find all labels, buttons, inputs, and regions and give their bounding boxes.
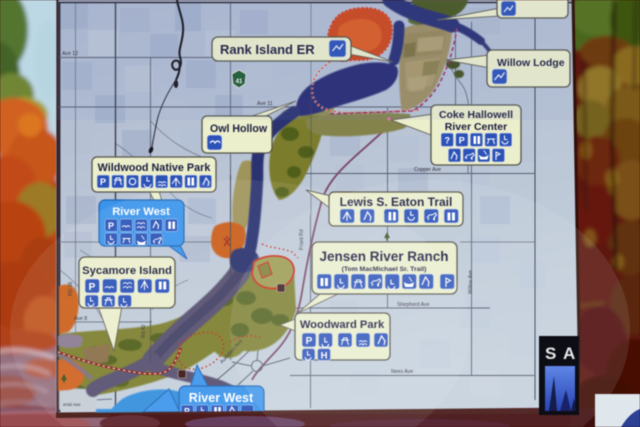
svg-text:River Center: River Center (445, 121, 507, 133)
svg-text:?: ? (444, 136, 450, 146)
svg-text:Copper Ave: Copper Ave (414, 167, 441, 173)
svg-text:S: S (545, 344, 556, 363)
svg-text:Wildwood Native Park: Wildwood Native Park (98, 162, 212, 174)
svg-text:A: A (563, 344, 575, 363)
svg-text:Owl Hollow: Owl Hollow (210, 123, 268, 135)
svg-text:P: P (459, 136, 465, 146)
svg-text:P: P (100, 177, 106, 187)
